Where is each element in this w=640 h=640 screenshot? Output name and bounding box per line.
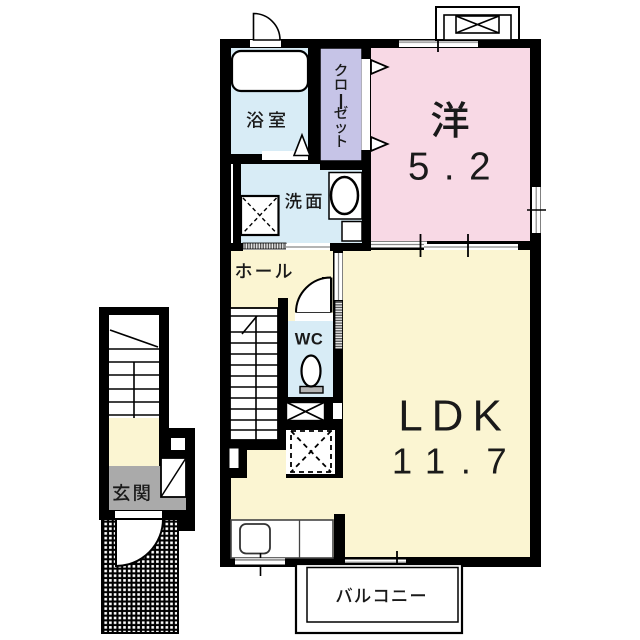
svg-text:5.2: 5.2 bbox=[408, 146, 505, 189]
svg-text:11.7: 11.7 bbox=[392, 441, 522, 482]
svg-text:WC: WC bbox=[295, 331, 324, 349]
svg-text:LDK: LDK bbox=[398, 392, 511, 441]
